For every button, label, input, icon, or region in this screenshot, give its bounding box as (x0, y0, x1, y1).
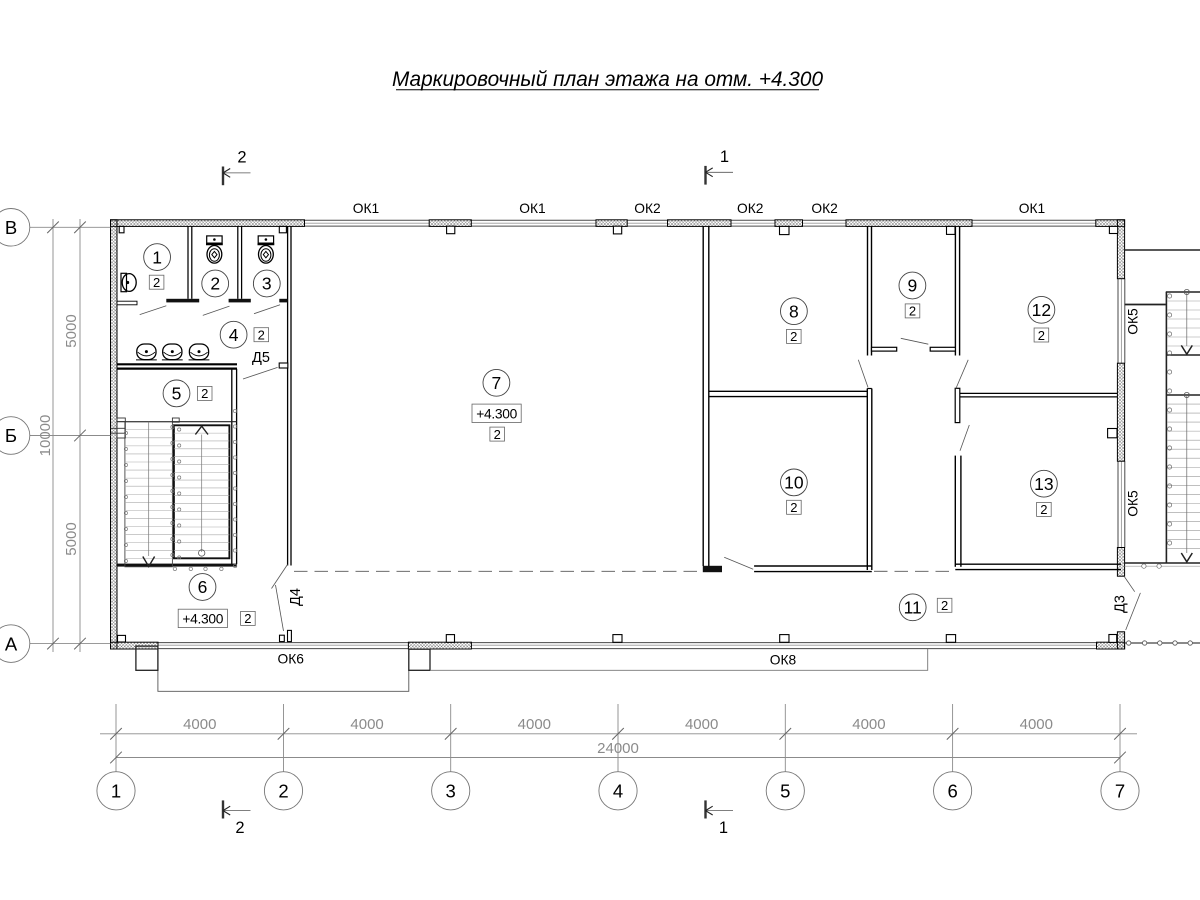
svg-text:4000: 4000 (183, 716, 216, 733)
svg-text:В: В (5, 217, 17, 238)
svg-text:8: 8 (789, 301, 799, 321)
svg-text:5000: 5000 (63, 522, 80, 555)
svg-text:6: 6 (198, 577, 208, 597)
svg-text:7: 7 (492, 373, 502, 393)
svg-text:2: 2 (790, 329, 797, 344)
svg-text:13: 13 (1034, 474, 1053, 494)
svg-text:2: 2 (237, 149, 246, 167)
svg-text:2: 2 (258, 328, 265, 343)
svg-text:ОК8: ОК8 (770, 653, 797, 668)
svg-text:7: 7 (1115, 781, 1125, 802)
svg-text:2: 2 (278, 781, 288, 802)
svg-text:ОК1: ОК1 (519, 201, 545, 216)
svg-text:+4.300: +4.300 (182, 611, 223, 626)
svg-text:ОК1: ОК1 (353, 201, 379, 216)
svg-text:4: 4 (613, 781, 623, 802)
svg-text:2: 2 (1040, 502, 1047, 517)
svg-text:ОК5: ОК5 (1126, 308, 1141, 335)
svg-text:2: 2 (244, 611, 251, 626)
svg-text:5: 5 (172, 384, 182, 404)
svg-text:+4.300: +4.300 (476, 406, 517, 421)
svg-text:ОК1: ОК1 (1019, 201, 1045, 216)
svg-text:4000: 4000 (518, 716, 551, 733)
svg-text:ОК2: ОК2 (737, 201, 763, 216)
svg-text:1: 1 (111, 781, 121, 802)
svg-text:6: 6 (947, 781, 957, 802)
svg-text:11: 11 (904, 598, 922, 618)
svg-text:1: 1 (719, 819, 728, 837)
svg-text:2: 2 (941, 598, 948, 613)
svg-text:3: 3 (446, 781, 456, 802)
svg-text:4000: 4000 (685, 716, 718, 733)
svg-text:10: 10 (784, 473, 804, 493)
svg-text:2: 2 (909, 304, 916, 319)
svg-text:5000: 5000 (63, 314, 80, 347)
svg-text:2: 2 (1038, 328, 1045, 343)
svg-text:4000: 4000 (852, 716, 885, 733)
svg-text:ОК6: ОК6 (277, 652, 304, 667)
svg-text:А: А (5, 633, 18, 654)
svg-text:2: 2 (235, 819, 244, 837)
svg-text:2: 2 (494, 427, 501, 442)
svg-text:4000: 4000 (350, 716, 383, 733)
svg-text:ОК5: ОК5 (1126, 490, 1141, 517)
svg-text:12: 12 (1032, 300, 1051, 320)
svg-text:2: 2 (153, 275, 160, 290)
svg-text:Б: Б (5, 425, 17, 446)
svg-text:1: 1 (152, 247, 162, 267)
svg-text:1: 1 (720, 148, 729, 166)
svg-text:4000: 4000 (1020, 716, 1053, 733)
svg-text:2: 2 (790, 500, 797, 515)
svg-text:Д3: Д3 (1113, 595, 1129, 613)
svg-text:ОК2: ОК2 (634, 201, 660, 216)
svg-text:Маркировочный план этажа на от: Маркировочный план этажа на отм. +4.300 (392, 68, 823, 91)
svg-text:9: 9 (908, 276, 918, 296)
svg-text:24000: 24000 (597, 740, 639, 757)
svg-text:5: 5 (780, 781, 790, 802)
svg-text:Д4: Д4 (288, 588, 304, 606)
svg-text:Д5: Д5 (252, 350, 270, 366)
svg-text:ОК2: ОК2 (811, 201, 837, 216)
svg-text:3: 3 (262, 274, 272, 294)
svg-text:2: 2 (210, 274, 220, 294)
svg-text:4: 4 (229, 325, 239, 345)
svg-text:10000: 10000 (37, 415, 54, 457)
svg-text:2: 2 (201, 386, 208, 401)
